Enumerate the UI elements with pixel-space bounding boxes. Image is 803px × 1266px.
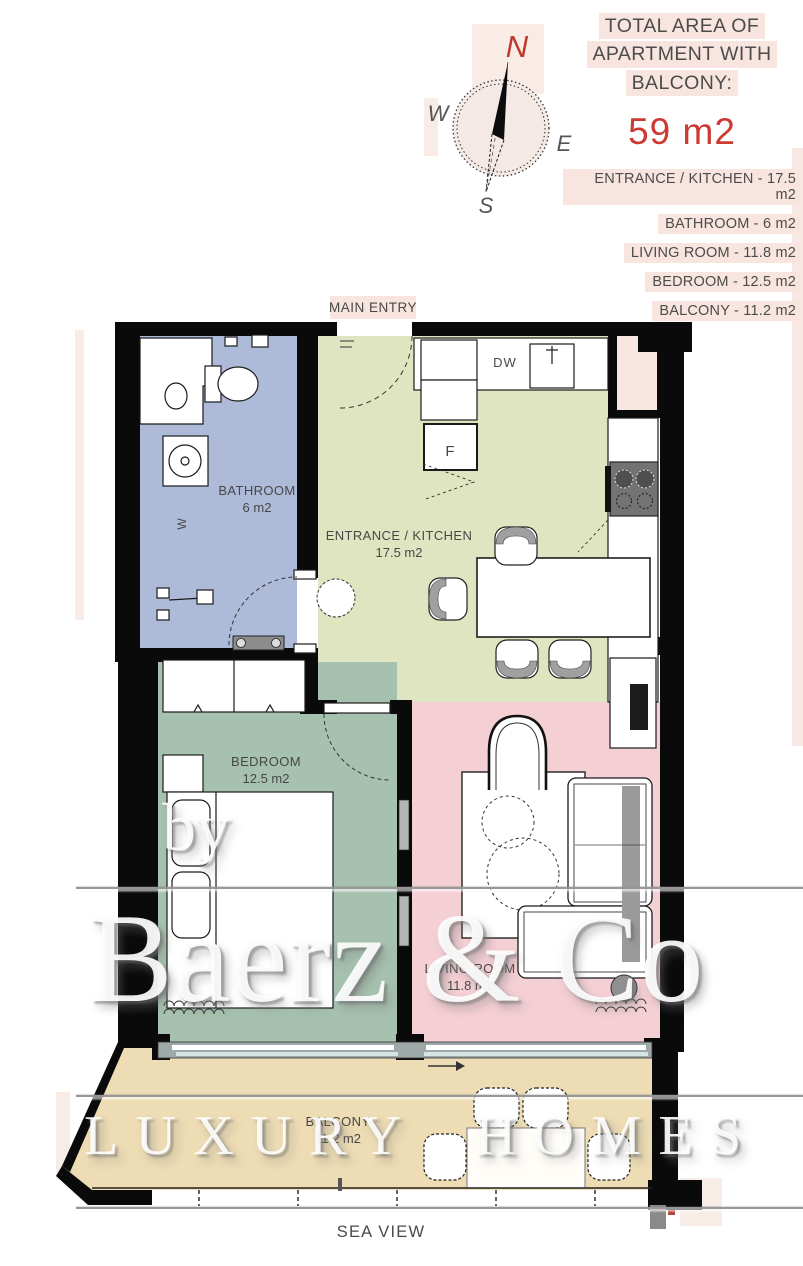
- title-block: TOTAL AREA OF APARTMENT WITH BALCONY: 59…: [563, 12, 801, 330]
- nightstand: [163, 755, 203, 792]
- pocket-door-panel: [399, 896, 409, 946]
- compass-south-label: S: [479, 193, 494, 218]
- balcony-area: 11.2 m2: [315, 1131, 361, 1146]
- balcony-chair: [588, 1134, 630, 1180]
- pouf: [611, 975, 637, 1001]
- living-label: LIVING ROOM: [424, 961, 515, 976]
- area-item: BALCONY - 11.2 m2: [652, 301, 801, 321]
- area-list: ENTRANCE / KITCHEN - 17.5 m2 BATHROOM - …: [563, 169, 801, 321]
- area-item: LIVING ROOM - 11.8 m2: [624, 243, 801, 263]
- kitchen-label: ENTRANCE / KITCHEN: [326, 528, 473, 543]
- kitchen-area: 17.5 m2: [376, 545, 423, 560]
- bathroom-label: BATHROOM: [218, 483, 295, 498]
- pocket-door-panel: [399, 800, 409, 850]
- bathroom-area: 6 m2: [243, 500, 272, 515]
- sofa-back-cushion: [622, 786, 640, 962]
- balcony-table: [467, 1128, 585, 1188]
- pillow: [172, 872, 210, 938]
- tv-icon: [630, 684, 648, 730]
- title-line: APARTMENT WITH: [587, 41, 778, 67]
- total-area-value: 59 m2: [563, 111, 801, 153]
- dishwasher-label: DW: [493, 355, 517, 370]
- balcony-chair: [474, 1088, 519, 1128]
- dining-table: [477, 558, 650, 637]
- title-line: TOTAL AREA OF: [599, 13, 765, 39]
- floorplan-page: N W E S: [0, 0, 803, 1266]
- bedroom-area: 12.5 m2: [243, 771, 290, 786]
- washer-label: W: [175, 518, 189, 530]
- sea-view-label: SEA VIEW: [337, 1223, 425, 1241]
- main-entry-label: MAIN ENTRY: [329, 300, 417, 315]
- balcony-label: BALCONY: [306, 1114, 371, 1129]
- balcony-chair: [523, 1088, 568, 1128]
- pillow: [172, 800, 210, 866]
- area-item: BATHROOM - 6 m2: [658, 214, 801, 234]
- bedroom-label: BEDROOM: [231, 754, 301, 769]
- fridge-label: F: [445, 443, 454, 460]
- area-item: BEDROOM - 12.5 m2: [645, 272, 801, 292]
- area-item: ENTRANCE / KITCHEN - 17.5 m2: [563, 169, 801, 205]
- living-area: 11.8 m2: [447, 978, 493, 993]
- toilet-icon: [218, 367, 258, 401]
- compass-west-label: W: [428, 101, 451, 126]
- sink-icon: [165, 383, 187, 409]
- vanity-counter: [140, 338, 212, 424]
- balcony-chair: [424, 1134, 466, 1180]
- shower-fitting: [157, 588, 169, 598]
- title-line: BALCONY:: [626, 70, 739, 96]
- round-stool: [317, 579, 355, 617]
- bedroom-door-leaf: [324, 703, 390, 713]
- stove-icon: [610, 462, 658, 516]
- compass-north-label: N: [506, 29, 529, 64]
- armchair: [489, 716, 546, 790]
